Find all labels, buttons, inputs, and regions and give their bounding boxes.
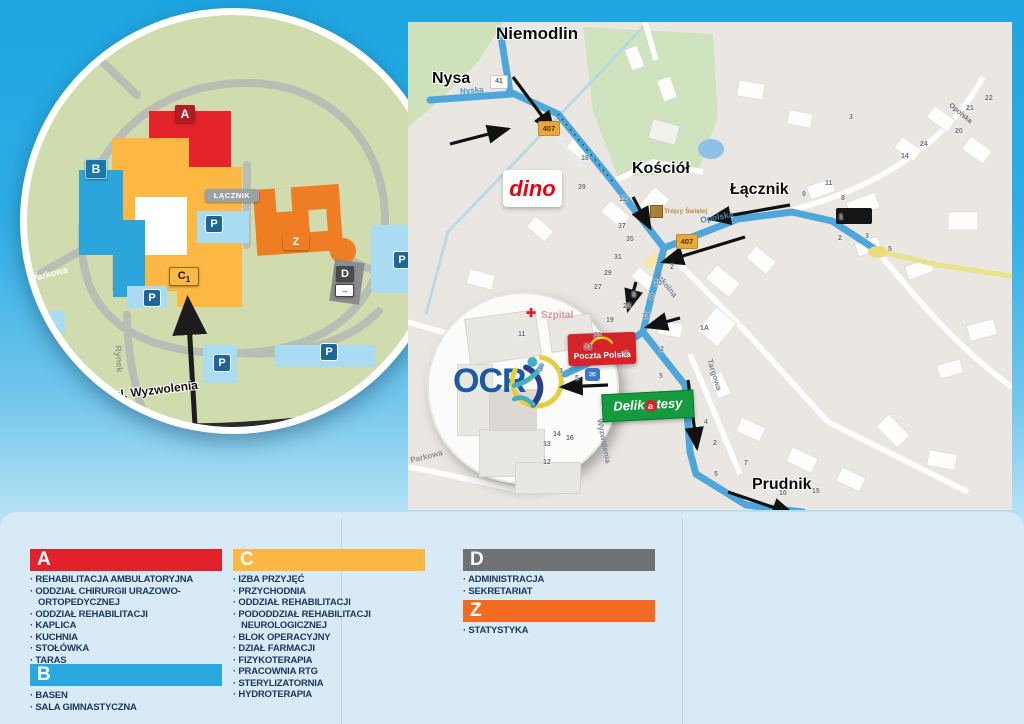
house-number: 37 xyxy=(618,223,626,230)
house-number: 39 xyxy=(578,184,586,191)
legend-bar-c: C xyxy=(233,549,425,571)
house-number: 2 xyxy=(670,264,674,271)
house-number: 29 xyxy=(604,270,612,277)
house-number: 35 xyxy=(626,236,634,243)
house-number: 14 xyxy=(901,153,909,160)
legend-item: ADMINISTRACJA xyxy=(463,574,659,586)
house-number: 11 xyxy=(518,331,525,338)
legend-list-c: IZBA PRZYJĘĆPRZYCHODNIAODDZIAŁ REHABILIT… xyxy=(233,574,433,701)
house-number: 2 xyxy=(660,346,664,353)
road-wyzwolenia xyxy=(52,405,373,427)
house-number: 12 xyxy=(543,459,551,466)
house-number: 3 xyxy=(559,368,563,375)
house-number: 22 xyxy=(985,95,993,102)
house-number: 8 xyxy=(841,195,845,202)
building-z-annex xyxy=(330,238,356,264)
legend-item: ODDZIAŁ CHIRURGII URAZOWO-ORTOPEDYCZNEJ xyxy=(30,586,226,609)
legend-panel: A REHABILITACJA AMBULATORYJNAODDZIAŁ CHI… xyxy=(0,512,1024,724)
house-number: 27 xyxy=(594,284,602,291)
tag-building-c1: C1 xyxy=(169,267,199,286)
house-number: 5 xyxy=(632,292,636,299)
house-number: 23 xyxy=(623,303,631,310)
house-number: 21 xyxy=(594,332,602,339)
legend-item: STOŁÓWKA xyxy=(30,643,226,655)
house-number: 3 xyxy=(865,233,869,240)
legend-item: PODODDZIAŁ REHABILITACJI NEUROLOGICZNEJ xyxy=(233,609,433,632)
legend-item: ODDZIAŁ REHABILITACJI xyxy=(30,609,226,621)
campus-map: A B Z C1 D → ŁĄCZNIK P P P P P Parkowa R… xyxy=(27,15,439,427)
legend-item: ODDZIAŁ REHABILITACJI xyxy=(233,597,433,609)
house-number: 31 xyxy=(584,344,592,351)
legend-item: DZIAŁ FARMACJI xyxy=(233,643,433,655)
house-number: 11 xyxy=(825,180,832,187)
connector-label: ŁĄCZNIK xyxy=(205,189,259,202)
house-number: 18 xyxy=(642,313,650,320)
house-number: 9 xyxy=(539,366,543,373)
legend-item: STATYSTYKA xyxy=(463,625,659,637)
house-number: 20 xyxy=(955,128,963,135)
legend-item: SEKRETARIAT xyxy=(463,586,659,598)
house-number: 1 xyxy=(839,214,843,221)
tag-building-d: D xyxy=(336,266,354,282)
campus-map-ring: A B Z C1 D → ŁĄCZNIK P P P P P Parkowa R… xyxy=(20,8,446,434)
route-arrow-to-entrance xyxy=(188,305,195,425)
house-number: 1A xyxy=(700,325,709,332)
legend-list-z: STATYSTYKA xyxy=(463,625,659,637)
house-number: 14 xyxy=(553,431,561,438)
legend-item: STERYLIZATORNIA xyxy=(233,678,433,690)
legend-item: IZBA PRZYJĘĆ xyxy=(233,574,433,586)
house-number: 2 xyxy=(838,235,842,242)
house-number: 21 xyxy=(966,105,974,112)
house-number: 5 xyxy=(888,246,892,253)
legend-item: BASEN xyxy=(30,690,226,702)
house-number: 13 xyxy=(543,441,551,448)
legend-item: PRACOWNIA RTG xyxy=(233,666,433,678)
legend-item: BLOK OPERACYJNY xyxy=(233,632,433,644)
house-number: 8 xyxy=(624,351,628,358)
campus-map-graphics xyxy=(27,15,439,427)
house-number: 12 xyxy=(619,196,627,203)
tag-building-b: B xyxy=(85,159,107,179)
legend-list-a: REHABILITACJA AMBULATORYJNAODDZIAŁ CHIRU… xyxy=(30,574,226,666)
parking-icon: P xyxy=(205,215,223,233)
house-numbers-layer: 18391237353129272108523181921311A2581198… xyxy=(408,22,1012,510)
legend-item: REHABILITACJA AMBULATORYJNA xyxy=(30,574,226,586)
house-number: 5 xyxy=(659,373,663,380)
house-number: 15 xyxy=(812,488,820,495)
house-number: 24 xyxy=(920,141,928,148)
house-number: 31 xyxy=(614,254,622,261)
legend-item: FIZYKOTERAPIA xyxy=(233,655,433,667)
tag-building-z: Z xyxy=(283,234,309,250)
fold-line xyxy=(682,518,683,724)
parking-icon: P xyxy=(213,354,231,372)
house-number: 18 xyxy=(581,155,589,162)
house-number: 5 xyxy=(714,471,718,478)
pond xyxy=(28,333,77,420)
legend-item: KAPLICA xyxy=(30,620,226,632)
parking-icon: P xyxy=(320,343,338,361)
house-number: 10 xyxy=(779,490,787,497)
brochure-page: { "colors":{ "sky_top":"#1ea5e0","sky_bo… xyxy=(0,0,1024,724)
legend-bar-z: Z xyxy=(463,600,655,622)
street-map: ✚ Szpital OCR xyxy=(408,22,1012,510)
house-number: 7 xyxy=(744,460,748,467)
legend-list-b: BASENSALA GIMNASTYCZNA xyxy=(30,690,226,713)
legend-bar-d: D xyxy=(463,549,655,571)
legend-bar-b: B xyxy=(30,664,222,686)
house-number: 2 xyxy=(713,440,717,447)
street-label-rynek: Rynek xyxy=(113,345,125,373)
legend-list-d: ADMINISTRACJASEKRETARIAT xyxy=(463,574,659,597)
legend-item: SALA GIMNASTYCZNA xyxy=(30,702,226,714)
legend-bar-a: A xyxy=(30,549,222,571)
house-number: 3 xyxy=(849,114,853,121)
house-number: 8 xyxy=(650,294,654,301)
house-number: 10 xyxy=(654,280,662,287)
legend-item: KUCHNIA xyxy=(30,632,226,644)
legend-item: PRZYCHODNIA xyxy=(233,586,433,598)
parking-icon: P xyxy=(143,289,161,307)
house-number: 16 xyxy=(566,435,574,442)
tag-building-a: A xyxy=(175,105,195,123)
house-number: 9 xyxy=(802,191,806,198)
entrance-arrow-icon: → xyxy=(335,284,354,297)
house-number: 19 xyxy=(606,317,614,324)
house-number: 5 xyxy=(575,375,579,382)
house-number: 4 xyxy=(704,419,708,426)
legend-item: HYDROTERAPIA xyxy=(233,689,433,701)
